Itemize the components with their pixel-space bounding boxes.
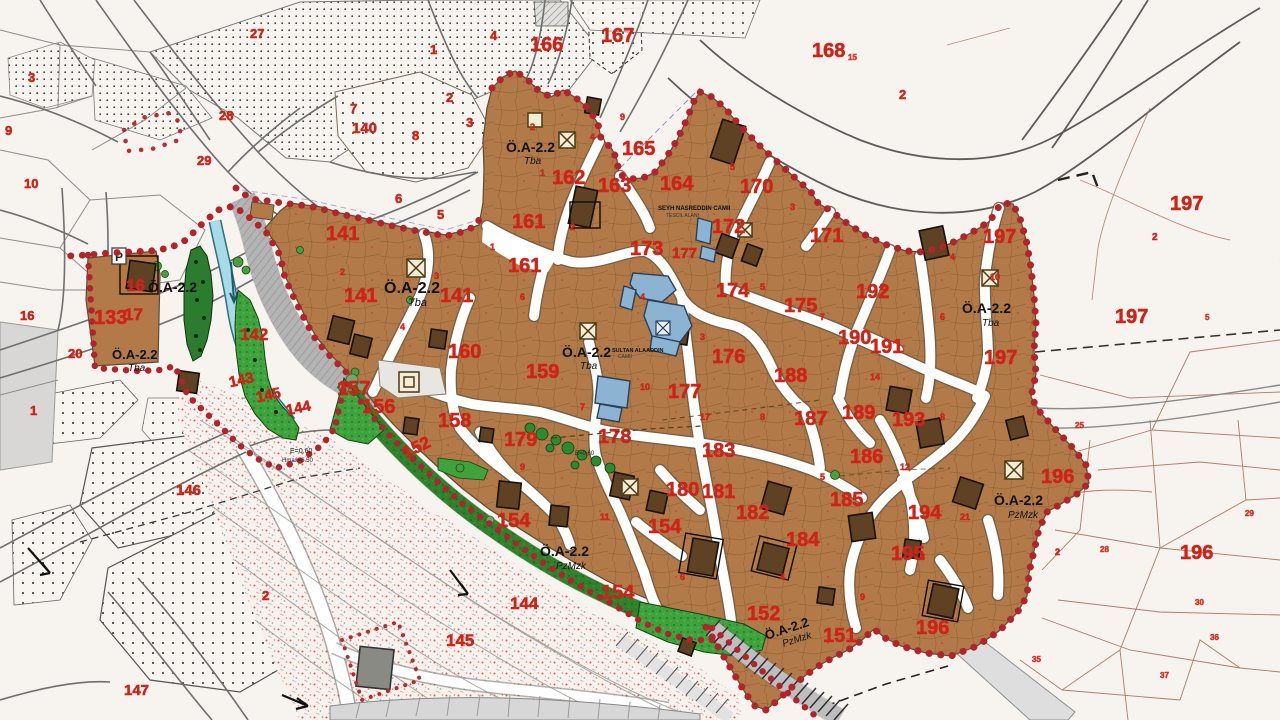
svg-text:28: 28 bbox=[1100, 545, 1109, 554]
svg-text:14: 14 bbox=[870, 372, 880, 382]
svg-text:182: 182 bbox=[736, 502, 769, 524]
svg-text:Ö.A-2.2: Ö.A-2.2 bbox=[506, 139, 555, 155]
svg-text:2: 2 bbox=[262, 588, 269, 603]
svg-text:178: 178 bbox=[598, 426, 631, 448]
svg-text:197: 197 bbox=[1170, 193, 1203, 215]
svg-text:PzMzk: PzMzk bbox=[556, 561, 587, 572]
svg-text:7: 7 bbox=[350, 101, 357, 116]
svg-text:1: 1 bbox=[490, 242, 495, 252]
svg-text:Ö.A-2.2: Ö.A-2.2 bbox=[540, 543, 589, 559]
svg-text:183: 183 bbox=[702, 440, 735, 462]
svg-text:151: 151 bbox=[823, 625, 856, 647]
svg-text:4: 4 bbox=[590, 132, 595, 142]
svg-text:10: 10 bbox=[990, 272, 1000, 282]
svg-text:Hmax=6.50: Hmax=6.50 bbox=[282, 458, 314, 464]
svg-text:5: 5 bbox=[437, 207, 444, 222]
svg-text:177: 177 bbox=[672, 245, 697, 262]
svg-text:9: 9 bbox=[520, 462, 525, 472]
svg-text:146: 146 bbox=[176, 482, 201, 499]
svg-text:2: 2 bbox=[1152, 232, 1158, 243]
svg-text:5: 5 bbox=[730, 162, 735, 172]
svg-text:4: 4 bbox=[950, 252, 955, 262]
svg-text:189: 189 bbox=[842, 402, 875, 424]
svg-text:3: 3 bbox=[434, 271, 439, 281]
svg-text:8: 8 bbox=[362, 292, 367, 302]
svg-text:145: 145 bbox=[446, 631, 474, 650]
svg-text:CAMII: CAMII bbox=[618, 354, 632, 360]
svg-text:175: 175 bbox=[784, 295, 817, 317]
svg-text:3: 3 bbox=[790, 202, 795, 212]
svg-text:4: 4 bbox=[780, 572, 785, 582]
svg-text:7: 7 bbox=[580, 402, 585, 412]
svg-text:141: 141 bbox=[344, 285, 377, 307]
svg-text:160: 160 bbox=[448, 341, 481, 363]
svg-text:30: 30 bbox=[1195, 598, 1204, 607]
svg-text:2: 2 bbox=[899, 87, 906, 102]
svg-text:197: 197 bbox=[984, 347, 1017, 369]
svg-text:Tba: Tba bbox=[128, 363, 146, 374]
svg-text:181: 181 bbox=[702, 481, 735, 503]
svg-text:21: 21 bbox=[960, 512, 970, 522]
svg-text:9: 9 bbox=[620, 112, 625, 122]
svg-text:156: 156 bbox=[362, 396, 395, 418]
svg-text:196: 196 bbox=[1180, 542, 1213, 564]
svg-text:36: 36 bbox=[1210, 633, 1219, 642]
svg-text:Tba: Tba bbox=[408, 297, 427, 309]
svg-text:164: 164 bbox=[660, 173, 694, 195]
svg-text:16: 16 bbox=[20, 308, 34, 323]
svg-text:4: 4 bbox=[400, 322, 405, 332]
svg-text:187: 187 bbox=[794, 408, 827, 430]
svg-text:Tba: Tba bbox=[580, 361, 598, 372]
svg-text:147: 147 bbox=[124, 682, 149, 699]
svg-text:162: 162 bbox=[552, 167, 585, 189]
svg-text:179: 179 bbox=[504, 429, 537, 451]
svg-text:20: 20 bbox=[68, 346, 82, 361]
svg-text:170: 170 bbox=[740, 176, 773, 198]
svg-text:191: 191 bbox=[870, 336, 903, 358]
svg-text:152: 152 bbox=[747, 603, 780, 625]
svg-text:163: 163 bbox=[598, 175, 631, 197]
svg-text:2: 2 bbox=[880, 282, 885, 292]
svg-text:180: 180 bbox=[666, 479, 699, 501]
svg-text:10: 10 bbox=[640, 382, 650, 392]
svg-text:1: 1 bbox=[540, 168, 545, 178]
svg-text:6: 6 bbox=[395, 191, 402, 206]
svg-text:144: 144 bbox=[510, 594, 539, 613]
svg-text:186: 186 bbox=[850, 446, 883, 468]
svg-text:176: 176 bbox=[712, 346, 745, 368]
svg-text:1: 1 bbox=[430, 42, 437, 57]
svg-text:161: 161 bbox=[508, 255, 541, 277]
svg-text:E=0.60: E=0.60 bbox=[290, 448, 312, 455]
svg-text:193: 193 bbox=[892, 409, 925, 431]
svg-text:184: 184 bbox=[786, 529, 820, 551]
svg-text:Ö.A-2.2: Ö.A-2.2 bbox=[112, 347, 158, 362]
svg-text:9: 9 bbox=[860, 592, 865, 602]
svg-text:29: 29 bbox=[1245, 509, 1254, 518]
svg-text:Ö.A-2.2: Ö.A-2.2 bbox=[148, 279, 197, 295]
svg-text:6: 6 bbox=[680, 572, 685, 582]
svg-text:3: 3 bbox=[28, 70, 35, 85]
svg-text:11: 11 bbox=[600, 512, 610, 522]
svg-text:154: 154 bbox=[601, 582, 635, 604]
svg-text:133: 133 bbox=[94, 307, 127, 329]
svg-text:158: 158 bbox=[438, 410, 471, 432]
svg-text:Ö.A-2.2: Ö.A-2.2 bbox=[384, 278, 440, 297]
svg-text:6: 6 bbox=[940, 312, 945, 322]
svg-text:196: 196 bbox=[916, 617, 949, 639]
svg-text:154: 154 bbox=[497, 510, 531, 532]
svg-text:27: 27 bbox=[250, 26, 264, 41]
svg-text:2: 2 bbox=[340, 267, 345, 277]
svg-text:Ö.A-2.2: Ö.A-2.2 bbox=[962, 300, 1011, 316]
svg-text:159: 159 bbox=[526, 361, 559, 383]
svg-text:Tba: Tba bbox=[524, 156, 542, 167]
svg-text:185: 185 bbox=[830, 489, 863, 511]
svg-text:188: 188 bbox=[774, 365, 807, 387]
svg-text:165: 165 bbox=[622, 138, 655, 160]
svg-text:5: 5 bbox=[820, 472, 825, 482]
svg-text:17: 17 bbox=[124, 305, 143, 324]
svg-text:10: 10 bbox=[24, 176, 38, 191]
svg-text:167: 167 bbox=[601, 25, 634, 47]
svg-text:TESCIL ALANI: TESCIL ALANI bbox=[666, 213, 699, 219]
svg-text:2: 2 bbox=[570, 222, 575, 232]
svg-text:PzMzk: PzMzk bbox=[1008, 510, 1039, 521]
svg-text:161: 161 bbox=[512, 211, 545, 233]
svg-text:168: 168 bbox=[812, 40, 845, 62]
svg-text:28: 28 bbox=[219, 108, 233, 123]
svg-text:4: 4 bbox=[640, 292, 645, 302]
svg-text:1: 1 bbox=[30, 403, 37, 418]
svg-text:154: 154 bbox=[648, 516, 682, 538]
svg-text:140: 140 bbox=[352, 120, 377, 137]
svg-text:197: 197 bbox=[983, 226, 1016, 248]
svg-text:2: 2 bbox=[1055, 547, 1060, 557]
svg-text:166: 166 bbox=[530, 34, 563, 56]
svg-text:SEYH NASREDDIN CAMII: SEYH NASREDDIN CAMII bbox=[658, 206, 731, 212]
svg-text:16: 16 bbox=[126, 276, 145, 295]
svg-text:2: 2 bbox=[446, 90, 453, 105]
svg-text:37: 37 bbox=[1160, 671, 1169, 680]
svg-text:8: 8 bbox=[760, 412, 765, 422]
svg-text:5: 5 bbox=[760, 282, 765, 292]
svg-text:Tba: Tba bbox=[982, 318, 1000, 329]
svg-text:9: 9 bbox=[5, 123, 12, 138]
svg-text:17: 17 bbox=[700, 412, 710, 422]
svg-text:5: 5 bbox=[1205, 313, 1210, 322]
svg-text:E=0.60: E=0.60 bbox=[575, 451, 595, 457]
svg-text:190: 190 bbox=[838, 327, 871, 349]
svg-text:3: 3 bbox=[466, 115, 473, 130]
svg-text:2: 2 bbox=[530, 122, 535, 132]
svg-text:141: 141 bbox=[440, 285, 473, 307]
svg-text:171: 171 bbox=[810, 225, 843, 247]
svg-text:15: 15 bbox=[848, 53, 857, 62]
svg-text:7: 7 bbox=[820, 312, 825, 322]
svg-text:8: 8 bbox=[412, 128, 419, 143]
svg-text:197: 197 bbox=[1115, 306, 1148, 328]
svg-text:Ö.A-2.2: Ö.A-2.2 bbox=[562, 344, 611, 360]
svg-text:3: 3 bbox=[920, 552, 925, 562]
svg-text:196: 196 bbox=[1041, 466, 1074, 488]
svg-text:8: 8 bbox=[940, 412, 945, 422]
svg-text:4: 4 bbox=[490, 28, 498, 43]
svg-text:3: 3 bbox=[700, 332, 705, 342]
svg-text:194: 194 bbox=[908, 502, 942, 524]
svg-text:172: 172 bbox=[712, 216, 745, 238]
svg-text:142: 142 bbox=[240, 325, 268, 344]
svg-text:174: 174 bbox=[716, 280, 750, 302]
svg-text:12: 12 bbox=[900, 462, 910, 472]
svg-text:141: 141 bbox=[326, 223, 359, 245]
svg-text:6: 6 bbox=[520, 292, 525, 302]
svg-text:29: 29 bbox=[197, 153, 211, 168]
svg-text:177: 177 bbox=[668, 381, 701, 403]
svg-text:173: 173 bbox=[630, 238, 663, 260]
svg-text:35: 35 bbox=[1032, 655, 1041, 664]
svg-text:Ö.A-2.2: Ö.A-2.2 bbox=[994, 492, 1043, 508]
svg-text:25: 25 bbox=[1075, 421, 1084, 430]
